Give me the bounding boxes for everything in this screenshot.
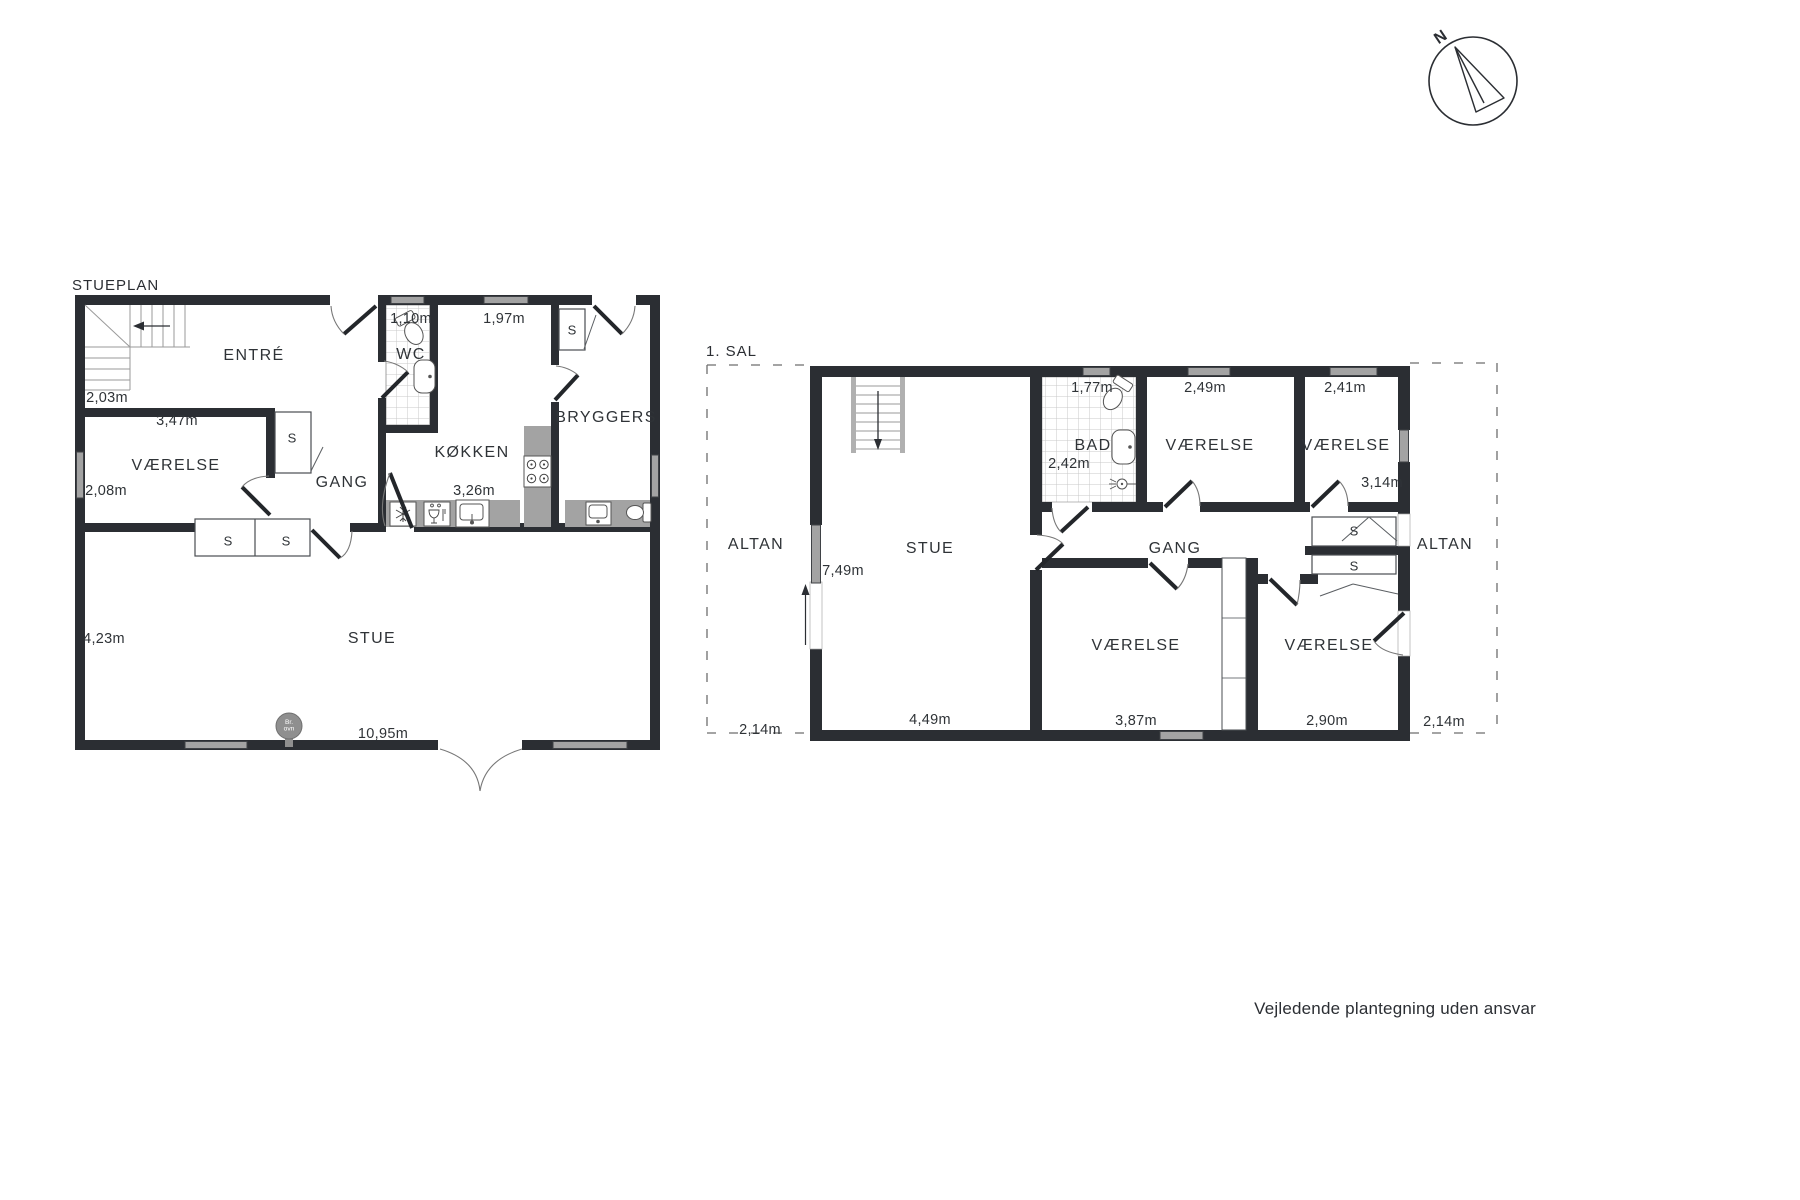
dim-stue-height: 4,23m — [83, 631, 125, 647]
dim-wc-width: 1,10m — [390, 311, 432, 327]
room-label-bad: BAD — [1074, 437, 1111, 455]
kitchen-sink-icon — [456, 500, 489, 527]
dim-bad-window: 1,77m — [1071, 380, 1113, 396]
dim-vaerelse-bottom-right: 2,90m — [1306, 713, 1348, 729]
floorplan-page: STUEPLAN 1. SAL ENTRÉ 2,03m 3,47m VÆRELS… — [0, 0, 1800, 1200]
bad-sink-icon — [1112, 430, 1135, 464]
dim-vaerelse-height: 2,08m — [85, 483, 127, 499]
room-label-vaerelse-bottom-right: VÆRELSE — [1285, 637, 1374, 655]
room-label-kokken: KØKKEN — [434, 444, 509, 462]
room-label-gang-sal1: GANG — [1149, 540, 1202, 558]
closet-label: S — [568, 323, 577, 338]
altan-exit-arrow — [802, 584, 810, 645]
dim-vaerelse-bottom-mid: 3,87m — [1115, 713, 1157, 729]
dim-bad-width: 2,42m — [1048, 456, 1090, 472]
room-label-entre: ENTRÉ — [223, 347, 284, 365]
dim-vaerelse-top-mid: 2,49m — [1184, 380, 1226, 396]
stove-icon — [524, 456, 551, 487]
closet-label: S — [288, 431, 297, 446]
closet-label: S — [224, 534, 233, 549]
room-label-wc: WC — [396, 346, 425, 364]
floorplan-drawing — [0, 0, 1800, 1200]
dim-stue-height-sal1: 7,49m — [822, 563, 864, 579]
wood-stove-label-line2: ovn — [284, 726, 295, 733]
staircase-ground — [85, 305, 190, 390]
room-label-stue-ground: STUE — [348, 630, 396, 648]
room-label-vaerelse-bottom-mid: VÆRELSE — [1092, 637, 1181, 655]
dim-vaerelse-right-height: 3,14m — [1361, 475, 1403, 491]
closet-label: S — [1350, 524, 1359, 539]
stueplan-floorplan — [75, 294, 660, 791]
disclaimer-text: Vejledende plantegning uden ansvar — [1100, 999, 1536, 1019]
dim-stairs: 2,03m — [86, 390, 128, 406]
closet-label: S — [1350, 559, 1359, 574]
dim-stue-width-sal1: 4,49m — [909, 712, 951, 728]
room-label-altan-left: ALTAN — [728, 536, 784, 554]
room-label-vaerelse-ground: VÆRELSE — [132, 457, 221, 475]
bryggers-sink-icon — [586, 502, 611, 525]
room-label-gang-ground: GANG — [316, 474, 369, 492]
room-label-bryggers: BRYGGERS — [555, 409, 657, 427]
dim-vaerelse-top-right: 2,41m — [1324, 380, 1366, 396]
dim-window-width: 1,97m — [483, 311, 525, 327]
room-label-altan-right: ALTAN — [1417, 536, 1473, 554]
room-label-stue-sal1: STUE — [906, 540, 954, 558]
wood-stove-label: Br. ovn — [284, 719, 295, 732]
dim-kokken-width: 3,26m — [453, 483, 495, 499]
closet-label: S — [282, 534, 291, 549]
first-floor-title: 1. SAL — [706, 343, 757, 360]
dim-altan-right: 2,14m — [1423, 714, 1465, 730]
dim-altan-left: 2,14m — [739, 722, 781, 738]
wc-sink-icon — [414, 360, 435, 393]
dishwasher-icon — [424, 502, 450, 526]
compass-icon — [1429, 37, 1517, 125]
room-label-vaerelse-top-right: VÆRELSE — [1302, 437, 1391, 455]
ground-floor-title: STUEPLAN — [72, 277, 159, 294]
sal1-floorplan — [707, 363, 1497, 741]
room-label-vaerelse-top-mid: VÆRELSE — [1166, 437, 1255, 455]
dim-stue-width: 10,95m — [358, 726, 408, 742]
dim-vaerelse-width: 3,47m — [156, 413, 198, 429]
chimney-shaft — [1222, 558, 1246, 730]
staircase-sal1 — [851, 377, 905, 453]
